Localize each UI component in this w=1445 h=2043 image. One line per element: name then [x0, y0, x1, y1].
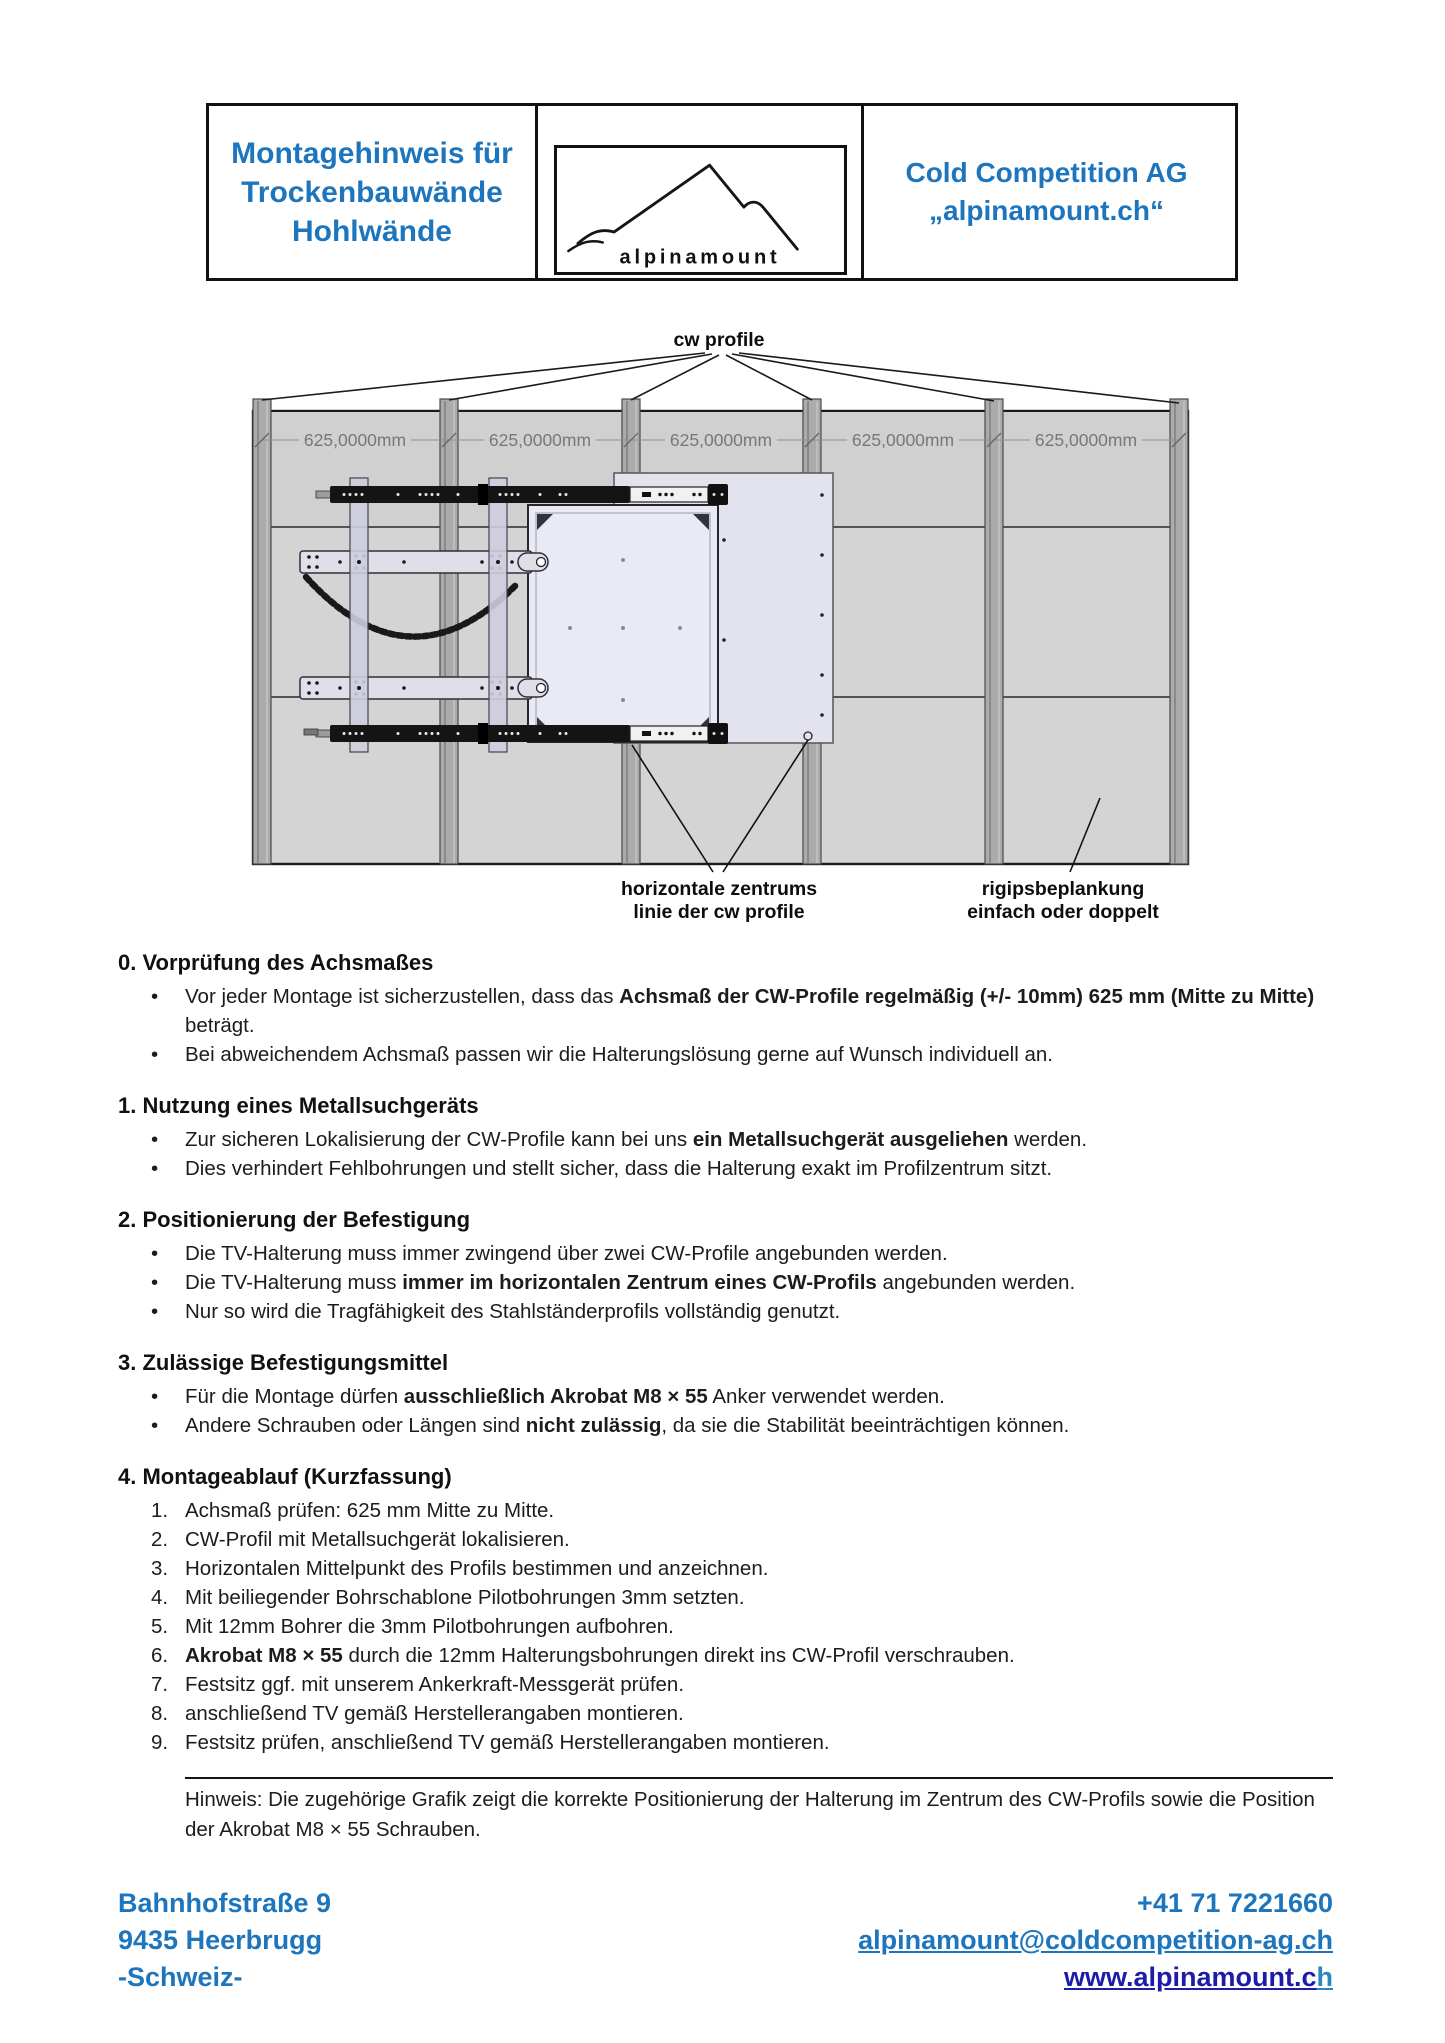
list-item-text: Horizontalen Mittelpunkt des Profils bes…: [185, 1554, 1333, 1583]
profile-center-marker: [804, 732, 812, 740]
list-marker: •: [151, 1382, 185, 1411]
header-company-cell: Cold Competition AG „alpinamount.ch“: [864, 106, 1229, 278]
center-line-label: horizontale zentrums: [621, 878, 817, 900]
mountain-logo-art: alpinamount: [557, 148, 844, 272]
list-item: 3.Horizontalen Mittelpunkt des Profils b…: [118, 1554, 1333, 1583]
list-marker: 4.: [151, 1583, 185, 1612]
section-heading: 4. Montageablauf (Kurzfassung): [118, 1462, 1333, 1492]
address-street: Bahnhofstraße 9: [118, 1885, 331, 1922]
list-item-text: Festsitz ggf. mit unserem Ankerkraft-Mes…: [185, 1670, 1333, 1699]
tv-panel: [528, 505, 718, 742]
website-link-tail[interactable]: h: [1317, 1962, 1334, 1992]
company-name: Cold Competition AG: [864, 154, 1229, 192]
cw-profile-stud: [253, 399, 271, 864]
list-item: •Bei abweichendem Achsmaß passen wir die…: [118, 1040, 1333, 1069]
mount-crossbar: [300, 677, 548, 699]
list-item: •Die TV-Halterung muss immer im horizont…: [118, 1268, 1333, 1297]
website-link-main[interactable]: www.alpinamount.c: [1064, 1962, 1317, 1992]
section-heading: 2. Positionierung der Befestigung: [118, 1205, 1333, 1235]
address-block: Bahnhofstraße 9 9435 Heerbrugg -Schweiz-: [118, 1885, 331, 1996]
note-text: Hinweis: Die zugehörige Grafik zeigt die…: [185, 1785, 1331, 1844]
center-line-label: linie der cw profile: [633, 901, 804, 923]
dimension-text: 625,0000mm: [852, 430, 954, 450]
list-item-text: Zur sicheren Lokalisierung der CW-Profil…: [185, 1125, 1333, 1154]
website-link[interactable]: www.alpinamount.ch: [858, 1959, 1333, 1996]
list-item-text: Dies verhindert Fehlbohrungen und stellt…: [185, 1154, 1333, 1183]
phone-number: +41 71 7221660: [858, 1885, 1333, 1922]
header-logo-cell: alpinamount: [538, 106, 864, 278]
list-item: 9.Festsitz prüfen, anschließend TV gemäß…: [118, 1728, 1333, 1757]
instruction-section: 0. Vorprüfung des Achsmaßes•Vor jeder Mo…: [118, 948, 1333, 1069]
diagram-svg: 625,0000mm 625,0000mm 625,0000mm 625,000…: [180, 320, 1340, 935]
list-marker: •: [151, 982, 185, 1040]
list-marker: 2.: [151, 1525, 185, 1554]
instruction-section: 4. Montageablauf (Kurzfassung)1.Achsmaß …: [118, 1462, 1333, 1757]
plank-label: rigipsbeplankung: [982, 878, 1145, 900]
list-item: •Zur sicheren Lokalisierung der CW-Profi…: [118, 1125, 1333, 1154]
list-marker: •: [151, 1040, 185, 1069]
list-marker: •: [151, 1154, 185, 1183]
mount-rail-bottom: [316, 723, 728, 744]
list-marker: 7.: [151, 1670, 185, 1699]
wall-mount-diagram: 625,0000mm 625,0000mm 625,0000mm 625,000…: [180, 320, 1340, 935]
section-heading: 1. Nutzung eines Metallsuchgeräts: [118, 1091, 1333, 1121]
address-city: 9435 Heerbrugg: [118, 1922, 331, 1959]
document-header: Montagehinweis für Trockenbauwände Hohlw…: [206, 103, 1238, 281]
address-country: -Schweiz-: [118, 1959, 331, 1996]
header-title-line: Montagehinweis für: [209, 134, 535, 173]
list-marker: •: [151, 1411, 185, 1440]
list-item-text: Mit 12mm Bohrer die 3mm Pilotbohrungen a…: [185, 1612, 1333, 1641]
mount-crossbar: [300, 551, 548, 573]
mount-strap: [350, 478, 368, 752]
mount-strap: [489, 478, 507, 752]
instruction-sections: 0. Vorprüfung des Achsmaßes•Vor jeder Mo…: [118, 948, 1333, 1757]
dimension-text: 625,0000mm: [489, 430, 591, 450]
list-marker: 1.: [151, 1496, 185, 1525]
list-marker: 9.: [151, 1728, 185, 1757]
list-item-text: Bei abweichendem Achsmaß passen wir die …: [185, 1040, 1333, 1069]
list-item: •Vor jeder Montage ist sicherzustellen, …: [118, 982, 1333, 1040]
list-item-text: Nur so wird die Tragfähigkeit des Stahls…: [185, 1297, 1333, 1326]
list-item: 6.Akrobat M8 × 55 durch die 12mm Halteru…: [118, 1641, 1333, 1670]
list-marker: 8.: [151, 1699, 185, 1728]
header-title-line: Hohlwände: [209, 212, 535, 251]
list-item-text: Festsitz prüfen, anschließend TV gemäß H…: [185, 1728, 1333, 1757]
list-item: 4.Mit beiliegender Bohrschablone Pilotbo…: [118, 1583, 1333, 1612]
list-item-text: Für die Montage dürfen ausschließlich Ak…: [185, 1382, 1333, 1411]
list-item: 8.anschließend TV gemäß Herstellerangabe…: [118, 1699, 1333, 1728]
logo-wordmark: alpinamount: [620, 246, 781, 268]
instruction-section: 3. Zulässige Befestigungsmittel•Für die …: [118, 1348, 1333, 1440]
list-marker: •: [151, 1125, 185, 1154]
list-item-text: Die TV-Halterung muss immer im horizonta…: [185, 1268, 1333, 1297]
cw-profile-stud: [985, 399, 1003, 864]
list-item: •Die TV-Halterung muss immer zwingend üb…: [118, 1239, 1333, 1268]
company-domain: „alpinamount.ch“: [864, 192, 1229, 230]
cw-profile-stud: [1170, 399, 1188, 864]
list-item-text: Andere Schrauben oder Längen sind nicht …: [185, 1411, 1333, 1440]
dimension-text: 625,0000mm: [1035, 430, 1137, 450]
cw-profile-leader-lines: [262, 353, 1179, 403]
list-item: 2.CW-Profil mit Metallsuchgerät lokalisi…: [118, 1525, 1333, 1554]
list-item: 1.Achsmaß prüfen: 625 mm Mitte zu Mitte.: [118, 1496, 1333, 1525]
dimension-text: 625,0000mm: [670, 430, 772, 450]
list-item-text: anschließend TV gemäß Herstellerangaben …: [185, 1699, 1333, 1728]
list-item: •Nur so wird die Tragfähigkeit des Stahl…: [118, 1297, 1333, 1326]
mountain-icon: [578, 165, 797, 249]
dimension-text: 625,0000mm: [304, 430, 406, 450]
list-item: 5.Mit 12mm Bohrer die 3mm Pilotbohrungen…: [118, 1612, 1333, 1641]
plank-label: einfach oder doppelt: [967, 901, 1159, 923]
instructions-body: 0. Vorprüfung des Achsmaßes•Vor jeder Mo…: [118, 948, 1333, 1844]
mount-rail-top: [316, 484, 728, 505]
list-marker: •: [151, 1239, 185, 1268]
list-item: •Andere Schrauben oder Längen sind nicht…: [118, 1411, 1333, 1440]
rail-handle: [304, 729, 318, 735]
list-item-text: Mit beiliegender Bohrschablone Pilotbohr…: [185, 1583, 1333, 1612]
list-item-text: Die TV-Halterung muss immer zwingend übe…: [185, 1239, 1333, 1268]
instruction-section: 2. Positionierung der Befestigung•Die TV…: [118, 1205, 1333, 1326]
list-marker: 3.: [151, 1554, 185, 1583]
list-item-text: Achsmaß prüfen: 625 mm Mitte zu Mitte.: [185, 1496, 1333, 1525]
alpinamount-logo: alpinamount: [554, 145, 847, 275]
contact-block: +41 71 7221660 alpinamount@coldcompetiti…: [858, 1885, 1333, 1996]
list-marker: •: [151, 1297, 185, 1326]
list-marker: 5.: [151, 1612, 185, 1641]
list-item-text: Akrobat M8 × 55 durch die 12mm Halterung…: [185, 1641, 1333, 1670]
list-item-text: Vor jeder Montage ist sicherzustellen, d…: [185, 982, 1333, 1040]
note-divider: [185, 1777, 1333, 1779]
email-link[interactable]: alpinamount@coldcompetition-ag.ch: [858, 1922, 1333, 1959]
list-marker: 6.: [151, 1641, 185, 1670]
header-title-cell: Montagehinweis für Trockenbauwände Hohlw…: [209, 106, 538, 278]
header-title-line: Trockenbauwände: [209, 173, 535, 212]
list-item: 7.Festsitz ggf. mit unserem Ankerkraft-M…: [118, 1670, 1333, 1699]
section-heading: 0. Vorprüfung des Achsmaßes: [118, 948, 1333, 978]
cw-profile-label: cw profile: [673, 329, 764, 351]
list-marker: •: [151, 1268, 185, 1297]
list-item: •Für die Montage dürfen ausschließlich A…: [118, 1382, 1333, 1411]
instruction-section: 1. Nutzung eines Metallsuchgeräts•Zur si…: [118, 1091, 1333, 1183]
list-item-text: CW-Profil mit Metallsuchgerät lokalisier…: [185, 1525, 1333, 1554]
contact-footer: Bahnhofstraße 9 9435 Heerbrugg -Schweiz-…: [118, 1885, 1333, 1996]
section-heading: 3. Zulässige Befestigungsmittel: [118, 1348, 1333, 1378]
list-item: •Dies verhindert Fehlbohrungen und stell…: [118, 1154, 1333, 1183]
